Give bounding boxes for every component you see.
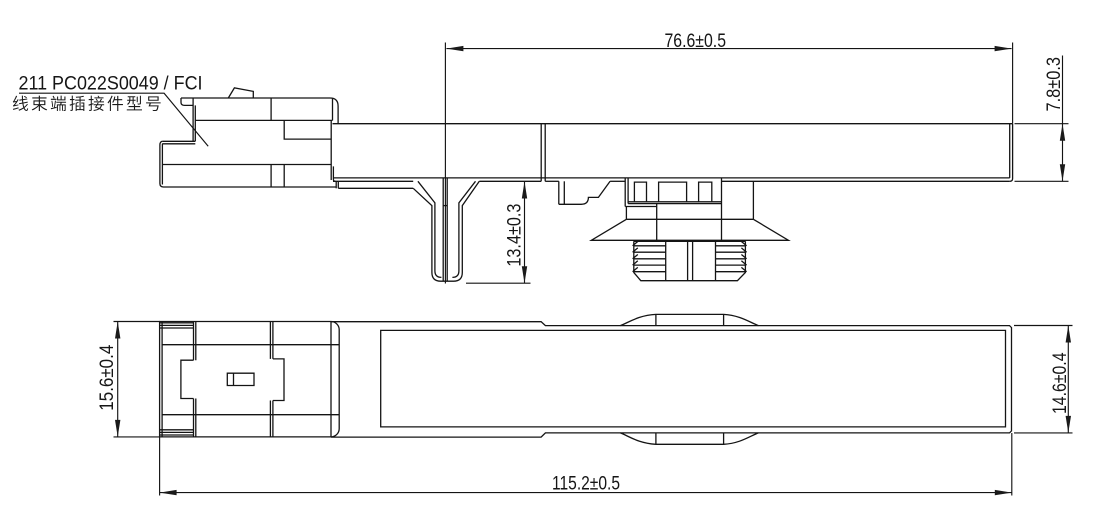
svg-text:15.6±0.4: 15.6±0.4 bbox=[97, 344, 118, 410]
svg-text:7.8±0.3: 7.8±0.3 bbox=[1044, 57, 1065, 112]
svg-text:76.6±0.5: 76.6±0.5 bbox=[665, 31, 727, 52]
svg-text:115.2±0.5: 115.2±0.5 bbox=[552, 474, 620, 495]
svg-text:14.6±0.4: 14.6±0.4 bbox=[1050, 352, 1071, 414]
svg-text:211 PC022S0049 / FCI: 211 PC022S0049 / FCI bbox=[19, 74, 203, 95]
svg-text:13.4±0.3: 13.4±0.3 bbox=[505, 204, 526, 267]
